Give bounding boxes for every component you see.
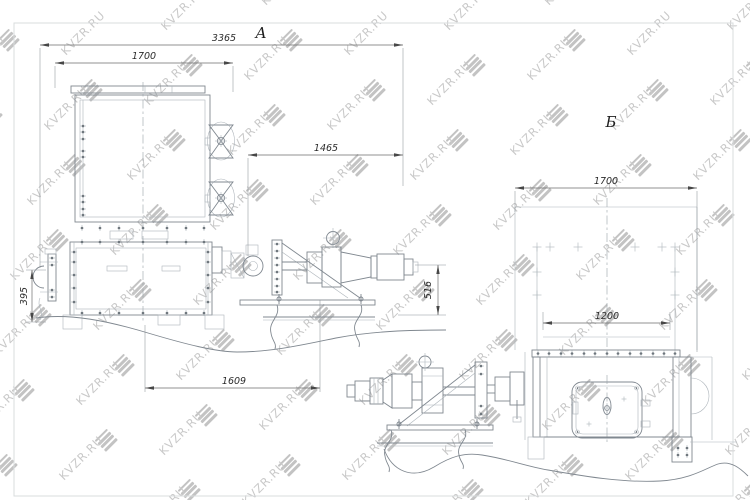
- svg-text:516: 516: [423, 281, 434, 299]
- svg-text:1609: 1609: [222, 376, 246, 387]
- view-a: А: [19, 24, 446, 392]
- dimension-left-height: 395: [19, 270, 46, 322]
- dimension-drive-span: 1465: [248, 143, 403, 256]
- view-b-plan: [515, 198, 697, 352]
- ground-break-line-a: [36, 316, 446, 352]
- view-b-label: Б: [604, 113, 616, 131]
- dimension-hopper-width: 1200: [543, 311, 670, 330]
- svg-text:1700: 1700: [594, 176, 618, 187]
- view-a-left-bracket: [33, 249, 58, 301]
- ground-break-line-b: [384, 449, 748, 481]
- view-a-plan: [71, 82, 210, 230]
- view-a-elevation: [63, 225, 224, 329]
- technical-drawing: А: [0, 0, 750, 500]
- svg-text:395: 395: [19, 287, 30, 305]
- svg-text:3365: 3365: [212, 33, 236, 44]
- hatch-bolt-icon: [636, 387, 638, 389]
- dimension-drive-height: 516: [398, 265, 446, 315]
- break-squiggle: [39, 298, 42, 320]
- hatch-door: [572, 382, 650, 438]
- drawing-canvas: KVZR.RUKVZR.RUKVZR.RUKVZR.RUKVZR.RUKVZR.…: [0, 0, 750, 500]
- svg-text:1465: 1465: [314, 143, 338, 154]
- hatch-bolt-icon: [577, 431, 579, 433]
- bolt-circle-icon: [323, 228, 343, 248]
- hatch-bolt-icon: [577, 387, 579, 389]
- dimension-overall-width-a: 3365: [40, 33, 403, 268]
- view-a-drive: [212, 228, 418, 349]
- impeller-icon: [208, 122, 235, 160]
- impeller-icon: [208, 179, 235, 217]
- view-b-front: [513, 350, 737, 462]
- view-b: Б: [347, 113, 748, 481]
- hatch-bolt-icon: [636, 431, 638, 433]
- dimension-plan-width-b: 1700: [515, 176, 697, 352]
- view-b-drive: [347, 352, 525, 472]
- view-a-label: А: [254, 24, 266, 42]
- svg-text:1700: 1700: [132, 51, 156, 62]
- sheet-border: [14, 23, 733, 496]
- svg-text:1200: 1200: [595, 311, 619, 322]
